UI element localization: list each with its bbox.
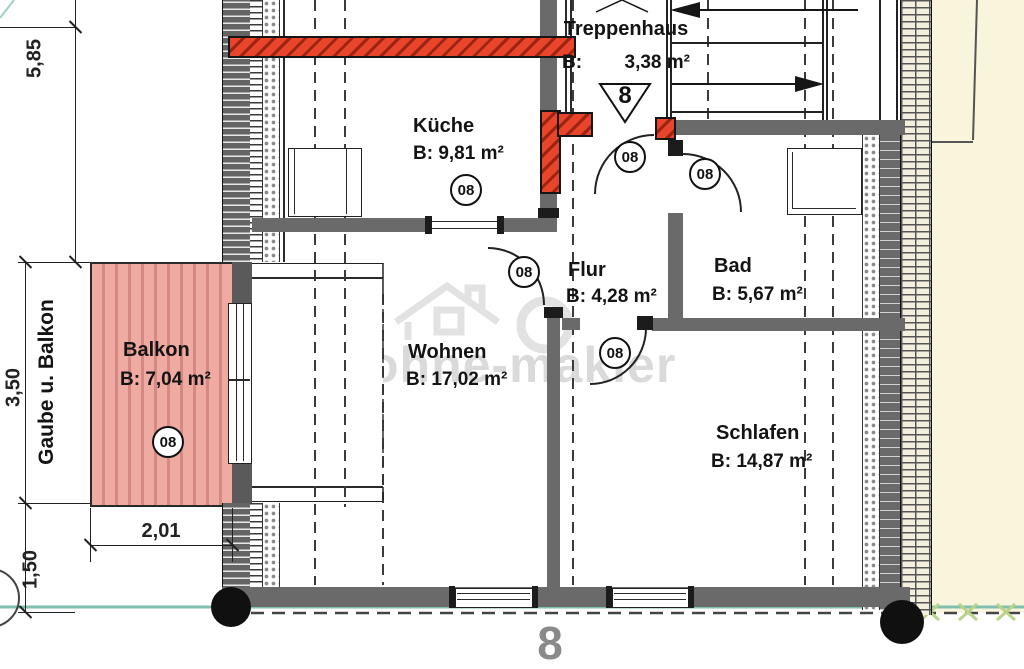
balcony-door-jamb <box>232 262 252 303</box>
door-badge-kueche: 08 <box>450 174 482 206</box>
window-jamb <box>532 586 538 608</box>
wall-stair-south <box>672 120 905 135</box>
area-value: 3,38 m² <box>625 52 690 74</box>
dim-ext-line <box>18 262 90 263</box>
room-label-bad: Bad <box>714 255 752 278</box>
window-jamb <box>449 586 455 608</box>
balcony-window-mullion <box>236 304 237 461</box>
room-area-bad: B: 5,67 m² <box>712 284 803 306</box>
door-hinge-stub <box>668 140 683 156</box>
site-boundary-line <box>973 0 977 140</box>
balcony-door-jamb <box>232 462 252 503</box>
window-glass-line <box>457 593 530 594</box>
kitchen-fixture-line <box>346 149 347 214</box>
wall-kueche-south <box>252 218 432 232</box>
sheet-number: 8 <box>528 616 572 669</box>
room-label-wohnen: Wohnen <box>408 341 487 364</box>
red-wall-stub <box>557 112 593 137</box>
window-glass-line <box>457 599 530 600</box>
door-jamb <box>497 216 504 234</box>
room-area-balkon: B: 7,04 m² <box>120 369 211 391</box>
room-label-schlafen: Schlafen <box>716 422 799 445</box>
room-area-treppenhaus: B: 3,38 m² <box>562 52 690 74</box>
shower-fixture <box>787 148 862 215</box>
wall-end-cap <box>538 208 559 218</box>
room-label-flur: Flur <box>568 259 606 282</box>
window-glass-line <box>614 593 686 594</box>
shower-fixture-line <box>792 208 856 209</box>
room-area-kueche: B: 9,81 m² <box>413 143 504 165</box>
door-sill-line <box>432 221 497 222</box>
wall-end-cap <box>544 307 563 318</box>
room-area-schlafen: B: 14,87 m² <box>711 451 812 473</box>
shower-fixture-line <box>792 152 793 209</box>
window-schlafen-south <box>612 588 690 608</box>
window-wohnen-south <box>455 588 534 608</box>
door-hinge-stub <box>637 316 653 330</box>
wall-flur-north <box>497 218 557 232</box>
window-glass-line <box>614 599 686 600</box>
dim-line-2-01 <box>90 545 233 546</box>
wall-bottom-exterior <box>222 587 910 607</box>
level-triangle-partial-icon <box>596 0 648 12</box>
door-badge-flur: 08 <box>508 256 540 288</box>
dim-ext-line <box>0 27 76 28</box>
survey-point-dot <box>211 587 251 627</box>
dim-ext-line <box>232 508 233 562</box>
floor-plan: ohne-makler <box>0 0 1024 669</box>
wall-flur-south-stub <box>562 318 580 330</box>
room-label-treppenhaus: Treppenhaus <box>560 18 692 41</box>
balcony-window-mullion <box>243 304 244 461</box>
wall-right-core <box>878 128 900 610</box>
wall-bad-west <box>668 213 683 320</box>
wall-right-insulation <box>862 128 880 610</box>
dim-ext-line <box>90 508 91 562</box>
room-label-kueche: Küche <box>413 115 474 138</box>
property-line-corner <box>0 0 14 18</box>
door-sill-line <box>432 228 497 229</box>
window-jamb <box>606 586 612 608</box>
dim-line-3-50-1-50 <box>25 262 26 613</box>
door-badge-bad: 08 <box>689 158 721 190</box>
window-jamb <box>688 586 694 608</box>
survey-point-dot <box>880 600 924 644</box>
dim-line-5-85 <box>75 0 76 263</box>
dim-ext-line <box>18 503 90 504</box>
kitchen-fixture <box>288 148 362 217</box>
stair-arrow-up-head <box>670 2 700 18</box>
edge-circle-symbol <box>0 569 19 627</box>
room-area-flur: B: 4,28 m² <box>566 286 657 308</box>
room-area-wohnen: B: 17,02 m² <box>406 369 507 391</box>
door-badge-schlafen: 08 <box>599 337 631 369</box>
red-wall-stub <box>655 117 676 140</box>
door-badge-entry: 08 <box>614 141 646 173</box>
door-jamb <box>425 216 432 234</box>
balcony-window <box>228 303 252 464</box>
room-label-balkon: Balkon <box>123 339 190 362</box>
wall-wohnen-schlafen <box>547 307 560 589</box>
kitchen-fixture-line <box>294 149 295 214</box>
area-prefix: B: <box>562 52 582 74</box>
stair-arrow-down-head <box>795 76 824 92</box>
stair-number: 8 <box>611 82 639 110</box>
balcony-window-transom <box>229 379 250 381</box>
wall-bad-south <box>652 318 905 331</box>
red-beam-horizontal <box>228 36 576 58</box>
door-badge-balkon: 08 <box>152 426 184 458</box>
wall-right-brick <box>900 0 932 615</box>
